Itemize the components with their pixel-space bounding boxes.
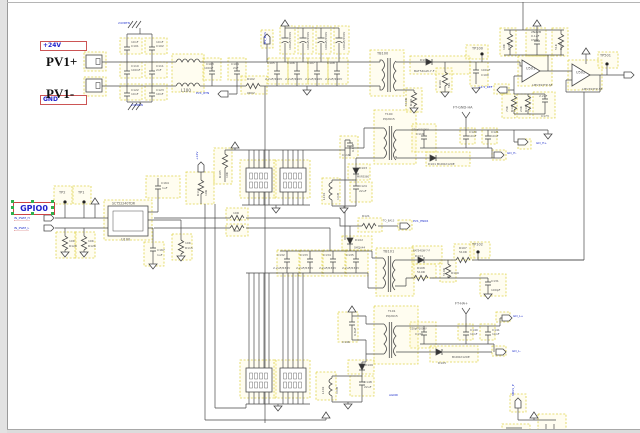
- net-label-24v[interactable]: +24V: [40, 41, 87, 51]
- port-12v: [198, 162, 204, 172]
- ic-u100[interactable]: [108, 206, 148, 236]
- port-gd-l-plus: [502, 315, 512, 321]
- gate-drive-block-4[interactable]: [280, 368, 306, 392]
- pin-name-pv1-plus: PV1+: [46, 55, 77, 68]
- connector-pv1-minus[interactable]: [86, 79, 102, 92]
- port-output: [624, 72, 634, 78]
- port-in-pwm-l: [44, 225, 54, 231]
- gate-drive-block-1[interactable]: [246, 168, 272, 192]
- sheet-bottom-border: [7, 429, 640, 433]
- gate-drive-block-2[interactable]: [280, 168, 306, 192]
- port-in-pwm-h: [44, 215, 54, 221]
- testpoint-tp100: [480, 52, 483, 55]
- connector-pv1-plus[interactable]: [86, 55, 102, 68]
- testpoint-tp102: [476, 250, 479, 253]
- gate-drive-block-3[interactable]: [246, 368, 272, 392]
- pin-name-pv1-minus: PV1-: [46, 87, 74, 100]
- testpoint-tp1: [82, 200, 85, 203]
- schematic-canvas: +24V GND PV1+ PV1- GPIO0 24VRTN10nFC1011…: [0, 0, 640, 433]
- testpoint-tp2: [63, 200, 66, 203]
- testpoint-tp501: [605, 62, 608, 65]
- net-label-gpio0-selected[interactable]: GPIO0: [13, 202, 55, 215]
- schematic-drawing: [0, 0, 640, 433]
- port-pv1-rtn: [218, 91, 228, 97]
